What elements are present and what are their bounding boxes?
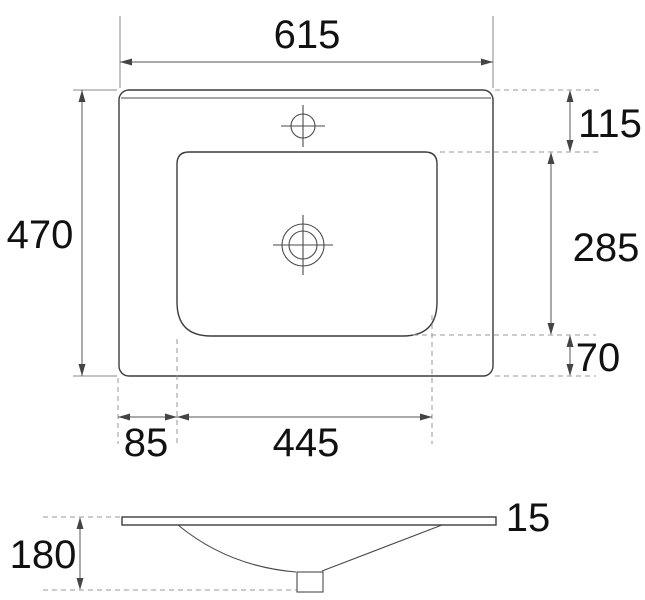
drain-icon [273,215,333,275]
dim-label-side-offset: 85 [124,421,169,465]
dim-label-basin-to-front-edge: 70 [576,336,621,380]
dimension-total-height: 180 [10,517,84,590]
side-view-rim-plate [122,517,496,525]
top-view [119,90,493,376]
dim-label-overall-depth: 470 [7,213,74,257]
dimension-rim-thickness: 15 [506,496,551,540]
dimension-overall-depth: 470 [7,90,117,376]
dim-label-basin-width: 445 [273,421,340,465]
dim-label-basin-depth: 285 [573,226,640,270]
dimension-basin-depth: 285 [548,152,640,335]
basin-outline [177,152,437,336]
dimension-basin-to-front-edge: 70 [567,335,621,380]
faucet-hole-icon [281,105,325,147]
side-view-bowl-right-slope [322,525,442,571]
side-view-drain-outlet [297,572,323,592]
dim-label-back-edge-to-basin: 115 [578,102,642,146]
dimension-overall-width: 615 [120,13,493,88]
dim-label-overall-width: 615 [274,13,341,57]
washbasin-dimension-drawing: 615 470 115 285 70 85 445 [0,0,645,600]
side-view-bowl-left-curve [178,525,296,572]
dimension-bottom-widths: 85 445 [118,414,432,466]
side-view [122,517,496,592]
dimension-back-edge-to-basin: 115 [567,90,642,152]
dim-label-total-height: 180 [10,533,77,577]
technical-drawing-canvas: 615 470 115 285 70 85 445 [0,0,645,600]
dim-label-rim-thickness: 15 [506,496,551,540]
